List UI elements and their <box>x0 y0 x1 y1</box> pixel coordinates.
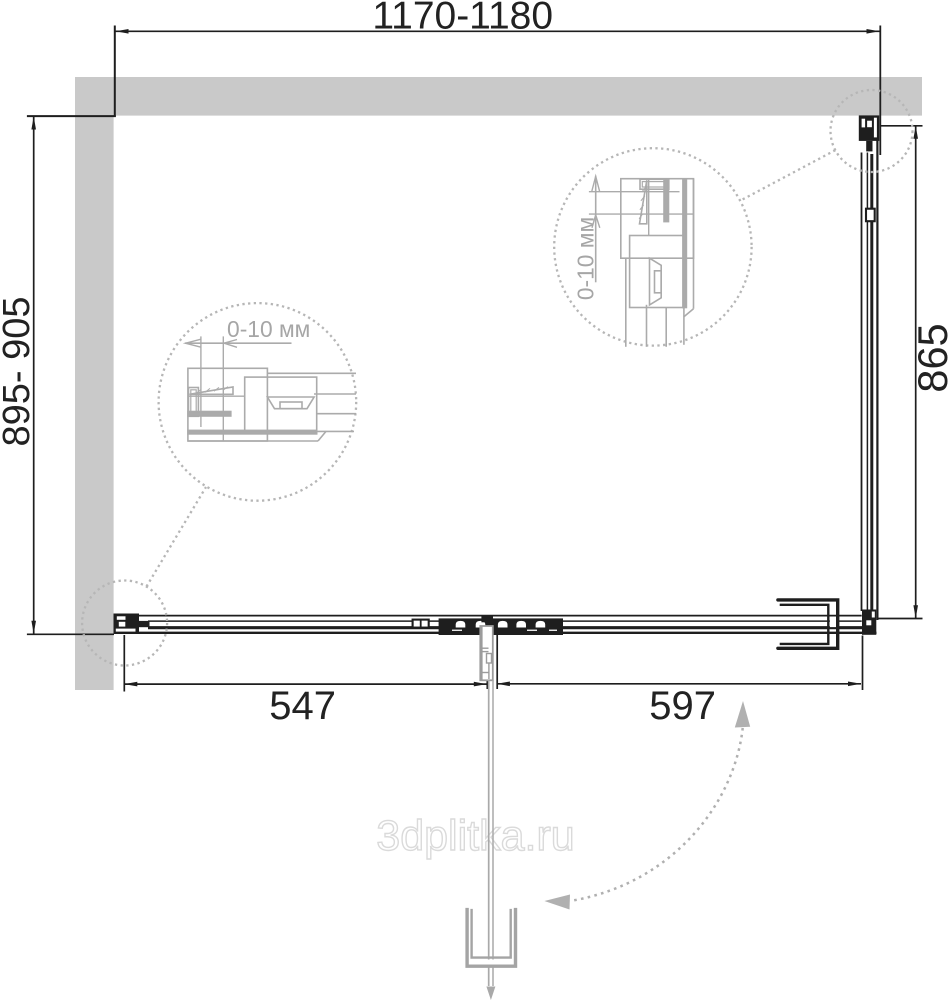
svg-text:895- 905: 895- 905 <box>0 296 38 446</box>
svg-text:547: 547 <box>269 684 336 728</box>
svg-text:0-10 мм: 0-10 мм <box>227 316 310 342</box>
svg-text:865: 865 <box>909 323 950 392</box>
svg-text:3dplitka.ru: 3dplitka.ru <box>376 812 574 860</box>
svg-text:597: 597 <box>649 684 716 728</box>
svg-text:1170-1180: 1170-1180 <box>372 0 553 38</box>
svg-text:0-10 мм: 0-10 мм <box>573 217 599 300</box>
